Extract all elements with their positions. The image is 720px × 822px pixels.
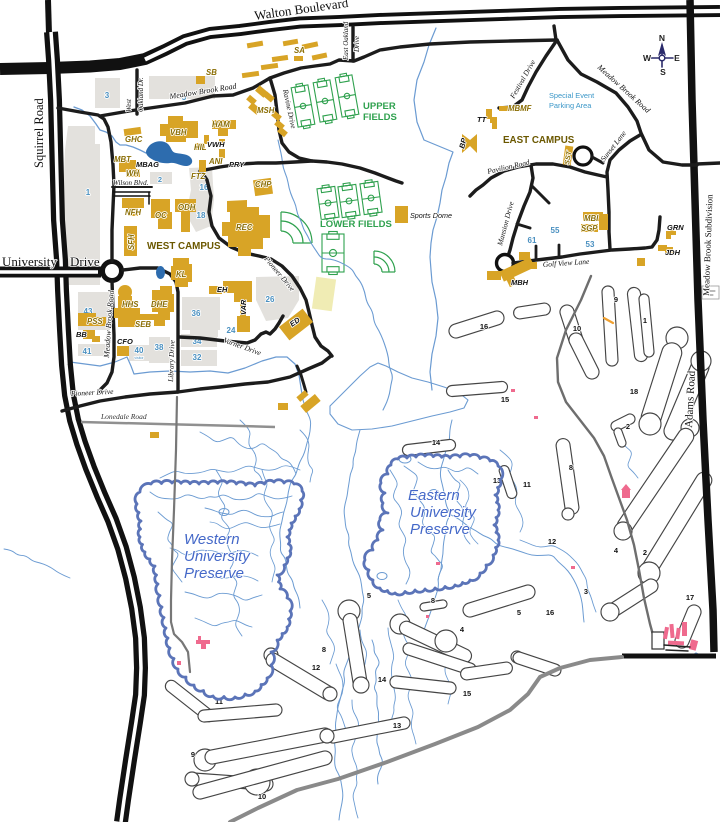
svg-text:KL: KL	[176, 270, 187, 279]
svg-text:S: S	[660, 67, 666, 77]
svg-text:Sports Dome: Sports Dome	[410, 211, 452, 220]
svg-text:SB: SB	[206, 68, 217, 77]
svg-text:Wilson Blvd.: Wilson Blvd.	[113, 179, 149, 187]
svg-text:WH: WH	[126, 169, 139, 178]
svg-text:MBT: MBT	[114, 155, 132, 164]
svg-text:West: West	[125, 98, 133, 112]
svg-text:12: 12	[548, 537, 556, 546]
svg-text:FIELDS: FIELDS	[363, 112, 397, 123]
svg-text:Lonedale Road: Lonedale Road	[100, 412, 147, 421]
svg-text:East Oakland: East Oakland	[342, 21, 350, 61]
svg-text:61: 61	[528, 236, 537, 245]
svg-text:12: 12	[312, 663, 320, 672]
svg-text:38: 38	[155, 343, 164, 352]
svg-text:E: E	[674, 53, 680, 63]
svg-text:CFO: CFO	[117, 337, 133, 346]
svg-text:18: 18	[630, 387, 638, 396]
svg-text:NFH: NFH	[125, 208, 141, 217]
svg-text:10: 10	[573, 324, 581, 333]
svg-text:PRY: PRY	[229, 160, 245, 169]
svg-text:14: 14	[378, 675, 387, 684]
svg-text:N: N	[659, 33, 665, 43]
svg-text:TT: TT	[477, 115, 488, 124]
svg-text:3: 3	[584, 587, 588, 596]
svg-text:5: 5	[517, 608, 521, 617]
svg-text:8: 8	[569, 463, 573, 472]
svg-text:EH: EH	[217, 285, 228, 294]
svg-text:University: University	[2, 254, 57, 269]
svg-text:Eastern: Eastern	[408, 487, 460, 504]
svg-text:17: 17	[686, 593, 694, 602]
svg-text:HIL: HIL	[194, 143, 207, 152]
svg-text:15: 15	[463, 689, 471, 698]
svg-text:WEST CAMPUS: WEST CAMPUS	[147, 241, 221, 252]
svg-text:HHS: HHS	[122, 300, 139, 309]
svg-text:visitor: visitor	[134, 356, 144, 360]
svg-text:VWH: VWH	[207, 140, 225, 149]
svg-text:Preserve: Preserve	[184, 565, 244, 582]
svg-text:53: 53	[586, 240, 595, 249]
svg-text:JDH: JDH	[665, 248, 681, 257]
svg-text:13: 13	[393, 721, 401, 730]
svg-text:55: 55	[551, 226, 560, 235]
svg-text:16: 16	[546, 608, 554, 617]
svg-text:36: 36	[192, 309, 201, 318]
svg-text:Oakland Dr.: Oakland Dr.	[137, 77, 145, 112]
svg-text:1: 1	[643, 316, 647, 325]
svg-text:3: 3	[105, 91, 110, 100]
svg-text:8: 8	[322, 645, 326, 654]
svg-text:EAST CAMPUS: EAST CAMPUS	[503, 135, 575, 146]
svg-text:Western: Western	[184, 531, 240, 548]
svg-text:MBH: MBH	[511, 278, 529, 287]
svg-text:UPPER: UPPER	[363, 101, 396, 112]
svg-text:14: 14	[432, 438, 441, 447]
svg-text:26: 26	[266, 295, 275, 304]
svg-text:1: 1	[86, 188, 91, 197]
svg-text:16: 16	[480, 322, 488, 331]
svg-text:BB: BB	[76, 330, 87, 339]
svg-text:LOWER FIELDS: LOWER FIELDS	[320, 219, 392, 230]
svg-text:GRN: GRN	[667, 223, 684, 232]
svg-text:11: 11	[523, 480, 531, 489]
svg-text:SA: SA	[294, 46, 305, 55]
svg-text:HAM: HAM	[212, 120, 230, 129]
svg-text:Library Drive: Library Drive	[166, 339, 177, 383]
svg-text:Drive: Drive	[70, 254, 100, 269]
svg-text:24: 24	[227, 326, 236, 335]
svg-text:CHP: CHP	[255, 180, 272, 189]
svg-text:VBH: VBH	[170, 128, 187, 137]
svg-text:University: University	[184, 548, 251, 565]
svg-text:8: 8	[431, 596, 435, 605]
svg-text:2: 2	[643, 548, 647, 557]
svg-text:DHE: DHE	[151, 300, 168, 309]
svg-text:40: 40	[135, 346, 144, 355]
svg-text:MBI: MBI	[584, 214, 599, 223]
svg-text:18: 18	[197, 211, 206, 220]
svg-text:Squirrel Road: Squirrel Road	[32, 97, 46, 168]
svg-text:ANI: ANI	[208, 157, 223, 166]
svg-text:MBAG: MBAG	[136, 160, 159, 169]
svg-text:OC: OC	[155, 211, 167, 220]
svg-text:Parking Area: Parking Area	[549, 101, 592, 110]
svg-text:2: 2	[158, 175, 162, 184]
svg-text:2: 2	[626, 422, 630, 431]
svg-text:41: 41	[83, 347, 92, 356]
svg-text:MSH: MSH	[257, 106, 275, 115]
svg-text:32: 32	[193, 353, 202, 362]
svg-text:W: W	[643, 53, 652, 63]
svg-text:SEB: SEB	[135, 320, 151, 329]
svg-text:15: 15	[501, 395, 509, 404]
svg-text:10: 10	[258, 792, 266, 801]
svg-text:5: 5	[367, 591, 371, 600]
svg-text:Preserve: Preserve	[410, 521, 470, 538]
svg-text:FTZ: FTZ	[191, 172, 206, 181]
svg-text:Drive: Drive	[353, 36, 361, 53]
svg-text:MBMF: MBMF	[508, 104, 532, 113]
svg-text:SGP: SGP	[581, 224, 598, 233]
svg-text:VAR: VAR	[239, 299, 248, 315]
svg-text:REC: REC	[236, 223, 253, 232]
svg-text:Special Event: Special Event	[549, 91, 594, 100]
svg-text:9: 9	[614, 295, 618, 304]
svg-text:PSS: PSS	[87, 317, 103, 326]
svg-text:University: University	[410, 504, 477, 521]
svg-text:ODH: ODH	[178, 203, 196, 212]
svg-text:9: 9	[191, 750, 195, 759]
svg-text:SFH: SFH	[127, 234, 136, 250]
svg-text:GHC: GHC	[125, 135, 143, 144]
